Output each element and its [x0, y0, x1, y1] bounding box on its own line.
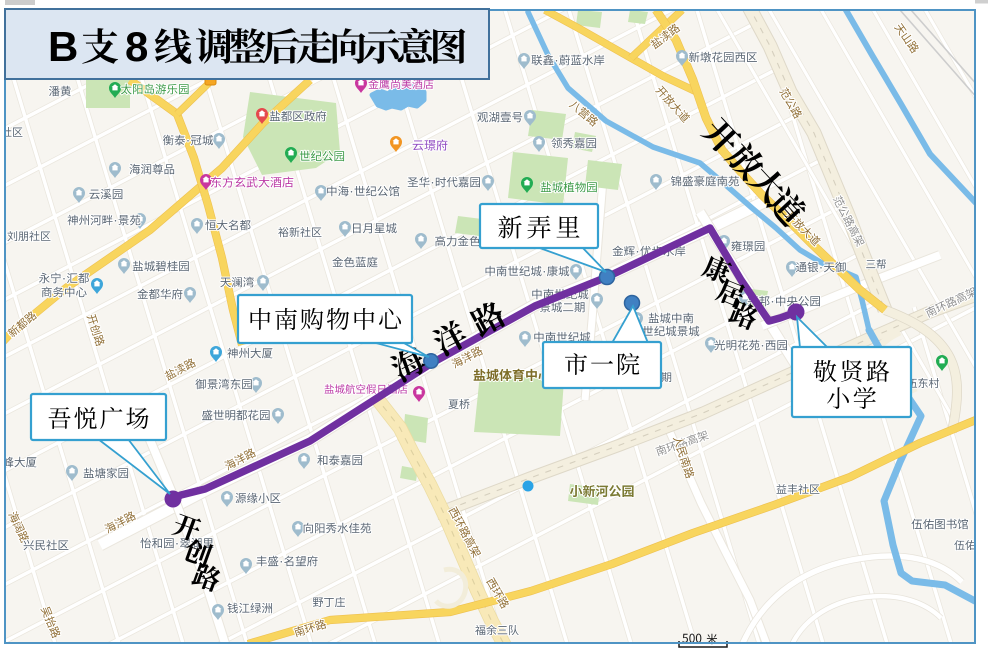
svg-text:B: B: [48, 23, 78, 70]
svg-text:8: 8: [125, 23, 148, 70]
